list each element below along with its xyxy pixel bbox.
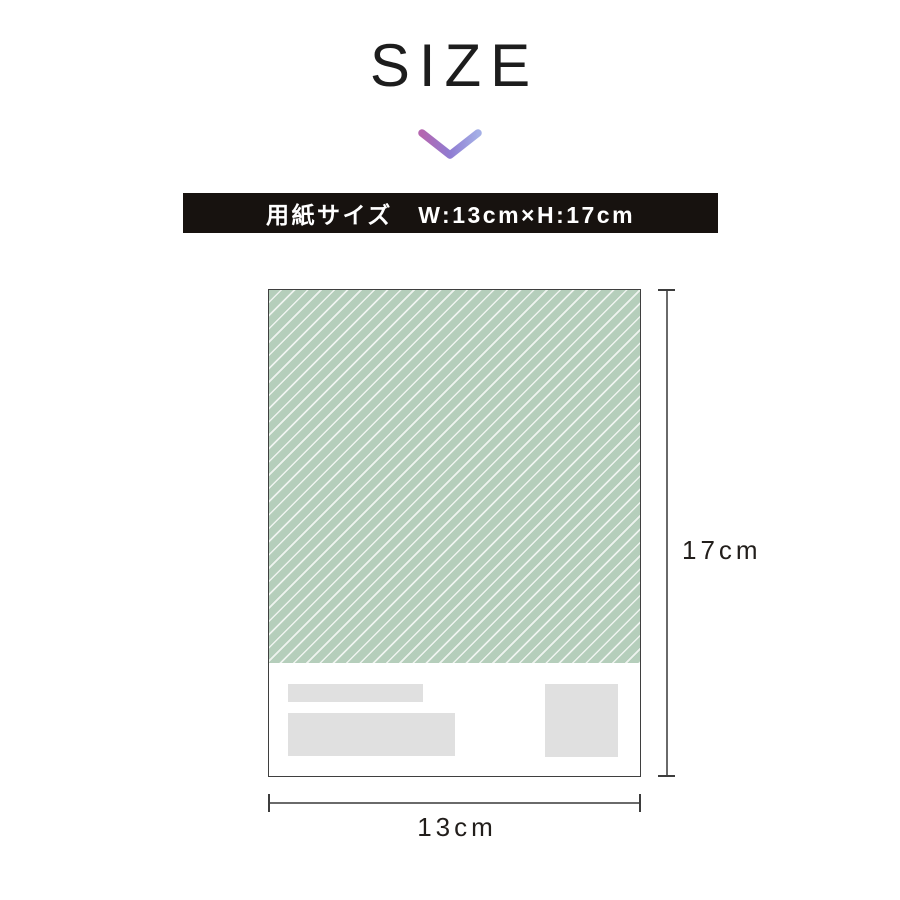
address-placeholder-block [288, 713, 455, 756]
page-title: SIZE [0, 36, 900, 96]
height-dimension-cap-top [658, 289, 675, 291]
width-dimension-cap-left [268, 794, 270, 812]
width-dimension-label: 13cm [269, 814, 641, 840]
chevron-down-icon [413, 121, 487, 163]
height-dimension-line [666, 290, 668, 777]
width-dimension-line [269, 802, 641, 804]
height-dimension-label: 17cm [682, 537, 762, 563]
paper-striped-area [269, 290, 640, 663]
address-placeholder-line [288, 684, 423, 702]
stamp-placeholder [545, 684, 618, 757]
spec-banner: 用紙サイズ W:13cm×H:17cm [183, 193, 718, 233]
spec-banner-text: 用紙サイズ W:13cm×H:17cm [266, 196, 635, 230]
height-dimension-cap-bottom [658, 775, 675, 777]
width-dimension-cap-right [639, 794, 641, 812]
paper-diagram [268, 289, 641, 777]
